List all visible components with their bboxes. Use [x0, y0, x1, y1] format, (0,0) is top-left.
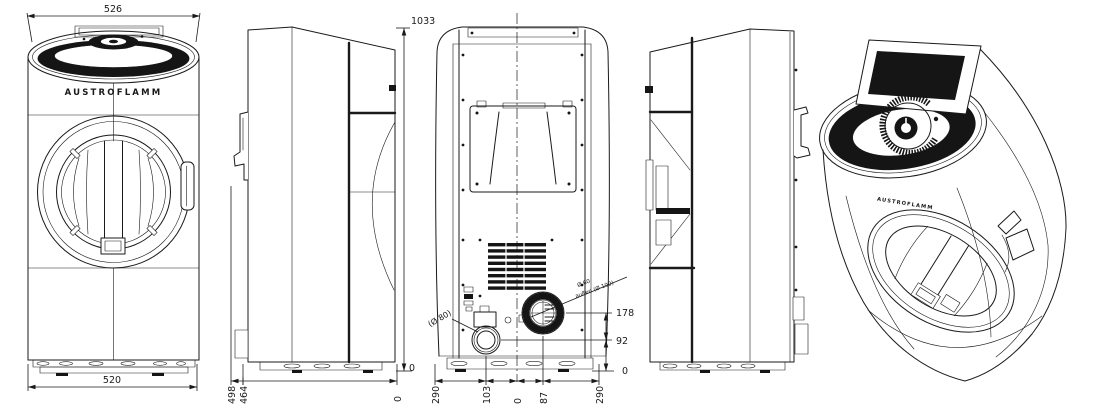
rear-view: Ø 60 außen (Ø 100) (Ø 80) 178 92 0: [426, 13, 634, 404]
rear-base-slots: [451, 361, 575, 365]
side-lock-mark: [389, 85, 396, 91]
air-intake: [472, 326, 500, 354]
base-strip: [40, 367, 188, 373]
hopper-curve-right: [547, 112, 556, 184]
flue-diameter-label: Ø 60: [576, 278, 591, 289]
dim-height-zero: 0: [409, 363, 415, 374]
side2-grip-outer: [646, 160, 653, 210]
dim-rear-left: 290: [431, 386, 442, 404]
side2-screws: [795, 69, 798, 292]
persp-door: [846, 185, 1037, 358]
stove-technical-drawing: 526 AUSTROFLAMM: [0, 0, 1120, 420]
side2-outline: [650, 29, 794, 362]
foot-left: [56, 373, 68, 376]
rear-plinth: [447, 358, 593, 369]
top-dot-left: [83, 38, 86, 41]
side2-diagonal-upper: [651, 120, 690, 170]
side2-plinth: [660, 362, 785, 370]
side2-foot: [700, 370, 710, 373]
brand-logo-perspective: AUSTROFLAMM: [877, 197, 934, 212]
dim-front-top-width: 526: [104, 4, 122, 15]
side2-door-handle: [794, 107, 810, 158]
side2-bracket-upper: [793, 297, 804, 320]
side2-grip-inner: [656, 166, 668, 210]
cable-gland: [505, 317, 511, 323]
rear-top-box: [468, 28, 578, 37]
display-screen: [868, 51, 965, 100]
side-glass-arc: [372, 122, 395, 290]
top-dot-right: [141, 35, 144, 38]
side2-foot: [760, 370, 770, 373]
persp-left-edge: [823, 150, 965, 381]
dim-air-height: 92: [616, 336, 628, 347]
hopper-lid: [470, 106, 576, 192]
dim-rear-height-zero: 0: [622, 366, 628, 377]
side2-bracket-lower: [795, 324, 808, 354]
rear-top-outline: [437, 27, 608, 52]
persp-door-handle: [998, 211, 1034, 272]
dim-flue-offset: 87: [539, 392, 550, 404]
igniter-stack: [464, 287, 473, 311]
extension-line: [196, 13, 200, 42]
side-base-slots: [284, 364, 360, 368]
rear-left-shell: [436, 52, 439, 356]
extension-line: [27, 13, 32, 42]
side2-ash-drawer: [656, 220, 671, 245]
dim-depth-body: 464: [239, 386, 250, 404]
rear-foot: [558, 369, 569, 372]
base-plinth: [33, 360, 195, 367]
brand-logo-front: AUSTROFLAMM: [65, 88, 163, 98]
door-latch: [101, 238, 125, 254]
dim-front-bottom-width: 520: [103, 375, 121, 386]
hopper-curve-left: [490, 112, 499, 184]
side-foot: [363, 370, 373, 373]
dim-overall-height: 1033: [411, 16, 435, 27]
side2-shelf: [656, 208, 690, 214]
top-dial-knob: [109, 40, 118, 44]
air-diameter-label: (Ø 80): [426, 307, 453, 328]
side-plinth: [260, 362, 382, 370]
dim-rear-right: 290: [595, 386, 606, 404]
side-view-left: 1033 0 498 464 0: [227, 16, 435, 404]
dim-depth-overall: 498: [227, 386, 238, 404]
flue-outlet: [522, 292, 564, 334]
side2-base-slots: [663, 364, 755, 368]
front-view: 526 AUSTROFLAMM: [27, 4, 200, 391]
side2-lock-mark: [645, 86, 653, 93]
side-outline: [248, 27, 395, 362]
rear-foot: [455, 369, 466, 372]
side-door-handle: [234, 112, 248, 180]
dim-flue-height: 178: [616, 308, 634, 319]
dim-rear-center-zero: 0: [513, 398, 524, 404]
side-rear-bracket: [235, 330, 248, 358]
dim-depth-zero: 0: [393, 396, 404, 402]
rear-right-shell: [606, 52, 609, 356]
dim-air-offset: 103: [482, 386, 493, 404]
side-view-right: [645, 29, 810, 373]
perspective-view: AUSTROFLAMM: [813, 40, 1066, 381]
side-foot: [292, 370, 302, 373]
door-hinge: [181, 162, 194, 210]
dial-dot: [934, 117, 938, 121]
junction-box: [474, 312, 496, 327]
foot-right: [152, 373, 164, 376]
base-slots: [37, 362, 186, 366]
